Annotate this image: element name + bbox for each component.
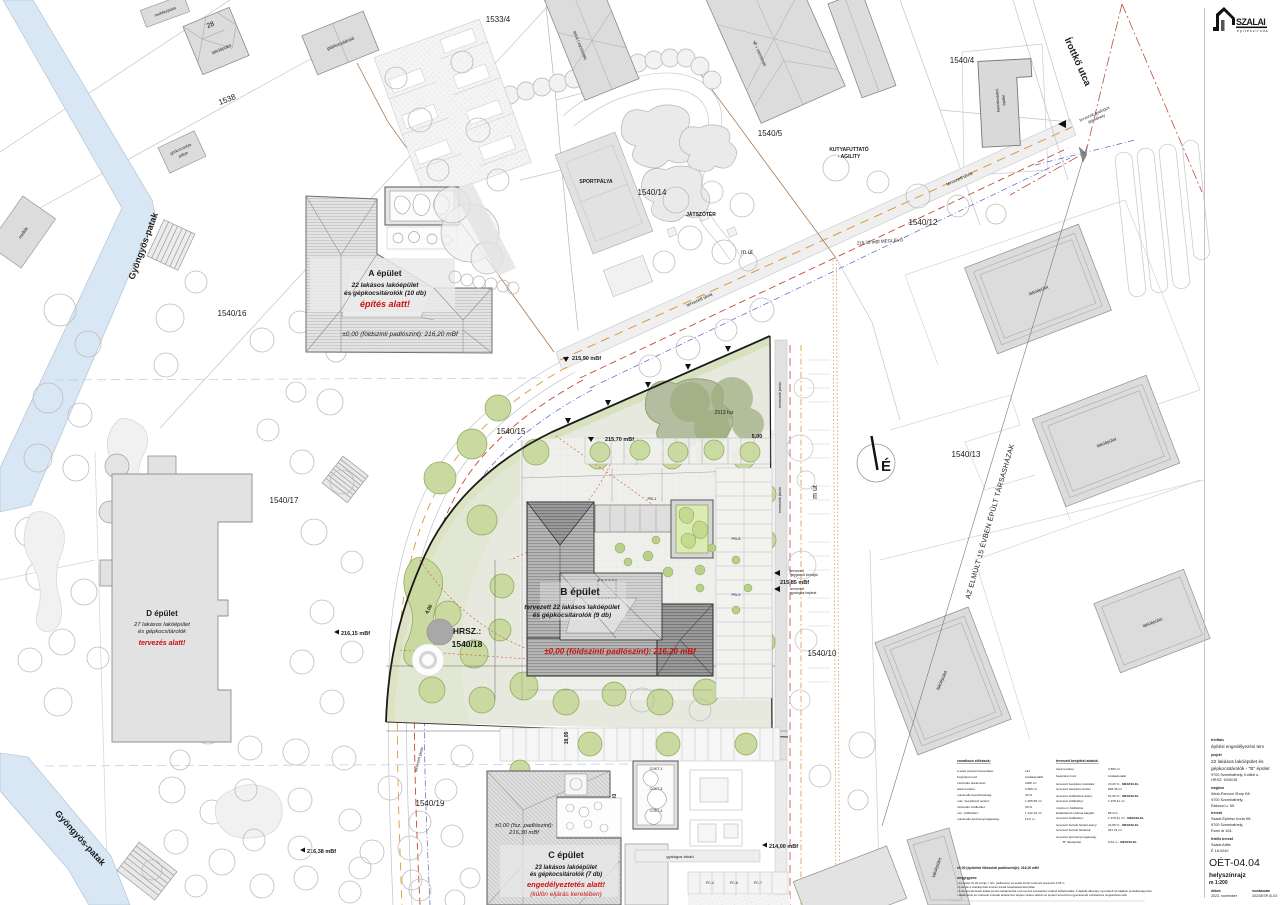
svg-text:É 18-0240: É 18-0240 bbox=[1211, 848, 1229, 853]
svg-text:megbízó: megbízó bbox=[1211, 786, 1224, 790]
svg-text:215,85 mBf: 215,85 mBf bbox=[780, 580, 809, 586]
svg-text:tervezett burkolt felületi ará: tervezett burkolt felületi arány: bbox=[1056, 823, 1097, 827]
svg-text:maximális beépíthetőség:: maximális beépíthetőség: bbox=[957, 793, 992, 797]
svg-text:1540/5: 1540/5 bbox=[758, 129, 783, 138]
svg-text:1540/19: 1540/19 bbox=[416, 799, 445, 808]
svg-text:215,90 mBf: 215,90 mBf bbox=[572, 356, 601, 362]
svg-text:18,05: 18,05 bbox=[564, 732, 570, 745]
svg-text:12,5 m: 12,5 m bbox=[1025, 817, 1035, 821]
svg-text:É: É bbox=[881, 458, 891, 475]
svg-text:216,30 mBf: 216,30 mBf bbox=[508, 830, 540, 836]
svg-text:tervezett beépítési adatok:: tervezett beépítési adatok: bbox=[1056, 759, 1099, 763]
svg-text:9,53 m - MEGFELEL: 9,53 m - MEGFELEL bbox=[1108, 840, 1137, 844]
svg-text:m út: m út bbox=[741, 250, 753, 256]
svg-text:projekt: projekt bbox=[1211, 753, 1223, 757]
svg-text:24,88 % - MEGFELEL: 24,88 % - MEGFELEL bbox=[1108, 823, 1139, 827]
svg-text:216,15 mBf: 216,15 mBf bbox=[341, 631, 370, 637]
svg-text:építésziroda: építésziroda bbox=[1237, 29, 1269, 33]
svg-text:3 809 m²: 3 809 m² bbox=[1108, 767, 1120, 771]
svg-text:2023. november: 2023. november bbox=[1211, 894, 1238, 898]
svg-text:minimum zöldfelület: minimum zöldfelület bbox=[1056, 806, 1083, 810]
svg-text:Lk1: Lk1 bbox=[1025, 769, 1030, 773]
svg-text:m út: m út bbox=[812, 485, 819, 499]
svg-text:engedélyeztetés alatt!: engedélyeztetés alatt! bbox=[527, 880, 605, 889]
svg-text:szabadonálló: szabadonálló bbox=[1108, 774, 1127, 778]
svg-text:tervezett zöldfelület:: tervezett zöldfelület: bbox=[1056, 799, 1084, 803]
svg-text:• Alkalmazott és módosult műsz: • Alkalmazott és módosult műszaki tartal… bbox=[957, 893, 1127, 897]
svg-text:helyszínrajz: helyszínrajz bbox=[1209, 872, 1247, 879]
svg-text:30 %: 30 % bbox=[1025, 793, 1032, 797]
svg-text:2024/ESP-B-03: 2024/ESP-B-03 bbox=[1252, 894, 1277, 898]
svg-text:tervezett járda: tervezett járda bbox=[777, 382, 782, 408]
svg-text:JÁTSZÓTÉR: JÁTSZÓTÉR bbox=[686, 210, 716, 218]
svg-text:1540/10: 1540/10 bbox=[808, 649, 837, 658]
svg-text:a telek övezeti besorolása:: a telek övezeti besorolása: bbox=[957, 769, 994, 773]
svg-text:dátum: dátum bbox=[1211, 889, 1221, 893]
svg-text:SZALAI: SZALAI bbox=[1236, 17, 1267, 27]
svg-text:és gépkocsitárolók (7 db): és gépkocsitárolók (7 db) bbox=[530, 872, 602, 878]
svg-text:±0,00 (épületek földszinti pad: ±0,00 (épületek földszinti padlószintje)… bbox=[957, 866, 1040, 870]
svg-text:Rumi út 104.: Rumi út 104. bbox=[1211, 829, 1233, 833]
svg-text:D épület: D épület bbox=[146, 609, 178, 618]
svg-text:HRSZ.:: HRSZ.: bbox=[453, 626, 482, 636]
svg-text:9700 Szombathely, Írottkő u.,: 9700 Szombathely, Írottkő u., bbox=[1211, 773, 1260, 777]
svg-text:1 978,41 m²: 1 978,41 m² bbox=[1108, 799, 1125, 803]
svg-text:Rákóczi u. 50.: Rákóczi u. 50. bbox=[1211, 804, 1235, 808]
svg-text:C épület: C épület bbox=[548, 850, 584, 860]
svg-text:West-Pannon Shop Kft.: West-Pannon Shop Kft. bbox=[1211, 792, 1251, 796]
svg-text:tervezett zöldfelületi arány:: tervezett zöldfelületi arány: bbox=[1056, 794, 1093, 798]
svg-text:minimális telekméret:: minimális telekméret: bbox=[957, 781, 986, 785]
svg-text:22 lakásos lakóépület és: 22 lakásos lakóépület és bbox=[1211, 759, 1264, 765]
svg-text:3 809 m²: 3 809 m² bbox=[1025, 787, 1037, 791]
svg-text:PC-4: PC-4 bbox=[706, 881, 714, 885]
svg-text:telek területe:: telek területe: bbox=[1056, 767, 1075, 771]
svg-text:és gépkocsitárolók: és gépkocsitárolók bbox=[138, 629, 187, 635]
svg-text:CGKT-1: CGKT-1 bbox=[650, 767, 663, 771]
svg-text:beépítési mód:: beépítési mód: bbox=[1056, 774, 1076, 778]
svg-text:munkaszám: munkaszám bbox=[1252, 889, 1270, 893]
svg-text:9700 Szombathely,: 9700 Szombathely, bbox=[1211, 823, 1243, 827]
svg-text:tervezett beépített terület:: tervezett beépített terület: bbox=[1056, 787, 1091, 791]
svg-text:vonatkozó előírások:: vonatkozó előírások: bbox=[957, 759, 991, 763]
svg-text:1 978,41 m² - MEGFELEL: 1 978,41 m² - MEGFELEL bbox=[1108, 816, 1144, 820]
svg-text:tervezett járda: tervezett járda bbox=[777, 487, 782, 513]
svg-text:23,20 % - MEGFELEL: 23,20 % - MEGFELEL bbox=[1108, 782, 1139, 786]
svg-text:2513 fsz: 2513 fsz bbox=[715, 410, 734, 416]
svg-text:PB-8: PB-8 bbox=[732, 536, 742, 541]
svg-text:gépjármű behajtó: gépjármű behajtó bbox=[790, 573, 818, 577]
svg-text:tervezett 22 lakásos lakóépüle: tervezett 22 lakásos lakóépület bbox=[524, 604, 620, 611]
svg-text:±0,00 (földszinti padlószint):: ±0,00 (földszinti padlószint): 216,20 mB… bbox=[544, 647, 697, 656]
svg-text:maximális építménymagasság:: maximális építménymagasság: bbox=[957, 817, 1000, 821]
svg-text:OÉT-04.04: OÉT-04.04 bbox=[1209, 856, 1260, 869]
svg-text:tervezett zöldfelület:: tervezett zöldfelület: bbox=[1056, 816, 1084, 820]
svg-text:±0,00 (földszinti padlószint):: ±0,00 (földszinti padlószint): 216,20 mB… bbox=[342, 331, 459, 338]
svg-text:szabadonálló: szabadonálló bbox=[1025, 775, 1044, 779]
svg-text:1 142,10 m²: 1 142,10 m² bbox=[1025, 811, 1042, 815]
svg-text:CGKT-4: CGKT-4 bbox=[650, 809, 663, 813]
svg-text:minimális zöldfelület:: minimális zöldfelület: bbox=[957, 805, 986, 809]
svg-text:kialakítandó szálma alapján:: kialakítandó szálma alapján: bbox=[1056, 811, 1095, 815]
svg-text:51,95 % - MEGFELEL: 51,95 % - MEGFELEL bbox=[1108, 794, 1139, 798]
svg-text:gyalogos bejárat: gyalogos bejárat bbox=[790, 591, 816, 595]
svg-text:és gépkocsitárolók (10 db): és gépkocsitárolók (10 db) bbox=[344, 290, 426, 297]
svg-text:1540/14: 1540/14 bbox=[638, 188, 667, 197]
svg-text:A épület: A épület bbox=[368, 268, 401, 278]
svg-text:Szalai Építész Iroda Kft.: Szalai Építész Iroda Kft. bbox=[1211, 816, 1252, 821]
svg-text:23 lakásos lakóépület: 23 lakásos lakóépület bbox=[534, 865, 598, 871]
svg-text:1533/4: 1533/4 bbox=[486, 15, 511, 24]
svg-text:PC-6: PC-6 bbox=[730, 881, 738, 885]
svg-text:883,38 m²: 883,38 m² bbox=[1108, 787, 1122, 791]
svg-text:214,00 mBf: 214,00 mBf bbox=[769, 844, 798, 850]
svg-text:- AGILITY: - AGILITY bbox=[838, 154, 861, 160]
svg-text:PB-1: PB-1 bbox=[648, 496, 658, 501]
svg-text:2000 m²: 2000 m² bbox=[1025, 781, 1036, 785]
svg-text:1540/16: 1540/16 bbox=[218, 309, 247, 318]
svg-text:1540/18: 1540/18 bbox=[452, 639, 483, 649]
svg-text:1540/17: 1540/17 bbox=[270, 496, 299, 505]
svg-text:Szalai Attila: Szalai Attila bbox=[1211, 843, 1232, 847]
svg-text:±0,00 (fsz. padlószint):: ±0,00 (fsz. padlószint): bbox=[495, 823, 554, 829]
svg-text:30 %: 30 % bbox=[1025, 805, 1032, 809]
svg-text:B épület: B épület bbox=[560, 587, 600, 598]
svg-text:1540/4: 1540/4 bbox=[950, 56, 975, 65]
svg-text:építési engedélyezési terv: építési engedélyezési terv bbox=[1211, 744, 1265, 749]
svg-text:tervezett beépítési százalék:: tervezett beépítési százalék: bbox=[1056, 782, 1095, 786]
svg-text:85 2m²: 85 2m² bbox=[1108, 811, 1118, 815]
svg-text:947,21 m²: 947,21 m² bbox=[1108, 828, 1122, 832]
svg-text:1540/15: 1540/15 bbox=[497, 427, 526, 436]
svg-text:KUTYAFUTTATÓ: KUTYAFUTTATÓ bbox=[829, 145, 868, 153]
svg-text:PB-9: PB-9 bbox=[732, 592, 742, 597]
svg-text:PC-7: PC-7 bbox=[754, 881, 762, 885]
svg-text:és gépkocsitárolók (9 db): és gépkocsitárolók (9 db) bbox=[533, 612, 611, 619]
svg-text:gyalogos árkád: gyalogos árkád bbox=[666, 854, 693, 859]
svg-text:telek területe:: telek területe: bbox=[957, 787, 976, 791]
svg-text:építés alatt!: építés alatt! bbox=[360, 299, 410, 309]
svg-text:SPORTPÁLYA: SPORTPÁLYA bbox=[579, 178, 613, 185]
svg-text:1540/12: 1540/12 bbox=[909, 218, 938, 227]
svg-text:215,70 mBf: 215,70 mBf bbox=[605, 437, 634, 443]
svg-text:(külön eljárás keretében): (külön eljárás keretében) bbox=[530, 891, 602, 898]
svg-text:5,00: 5,00 bbox=[752, 434, 763, 440]
svg-text:"B" lakóépület: "B" lakóépület bbox=[1062, 840, 1081, 844]
svg-text:27 lakásos lakóépület: 27 lakásos lakóépület bbox=[133, 622, 190, 628]
svg-text:tervezett burkolt felületek:: tervezett burkolt felületek: bbox=[1056, 828, 1091, 832]
svg-text:gépkocsitárolók - "B" épület: gépkocsitárolók - "B" épület bbox=[1211, 766, 1270, 772]
svg-text:CGKT-3: CGKT-3 bbox=[650, 787, 663, 791]
svg-text:9700 Szombathely,: 9700 Szombathely, bbox=[1211, 798, 1243, 802]
svg-text:beépítési mód:: beépítési mód: bbox=[957, 775, 977, 779]
svg-text:megjegyzés:: megjegyzés: bbox=[957, 876, 977, 880]
svg-text:min. zöldfelület:: min. zöldfelület: bbox=[957, 811, 979, 815]
svg-text:tervezés alatt!: tervezés alatt! bbox=[139, 640, 186, 647]
svg-text:tervezett építménymagasság:: tervezett építménymagasság: bbox=[1056, 835, 1097, 839]
svg-text:22 lakásos lakóépület: 22 lakásos lakóépület bbox=[351, 282, 420, 289]
svg-text:épület: épület bbox=[1001, 94, 1007, 106]
svg-text:1540/13: 1540/13 bbox=[952, 450, 981, 459]
svg-text:m 1:200: m 1:200 bbox=[1209, 880, 1228, 886]
svg-text:tervező: tervező bbox=[1211, 811, 1222, 815]
svg-text:max. beépíthető terület:: max. beépíthető terület: bbox=[957, 799, 990, 803]
svg-text:felelős tervező: felelős tervező bbox=[1211, 837, 1233, 841]
svg-text:tervfázis: tervfázis bbox=[1211, 738, 1224, 742]
svg-text:1 905,55 m²: 1 905,55 m² bbox=[1025, 799, 1042, 803]
svg-text:HRSZ: 1540/18: HRSZ: 1540/18 bbox=[1211, 778, 1237, 782]
